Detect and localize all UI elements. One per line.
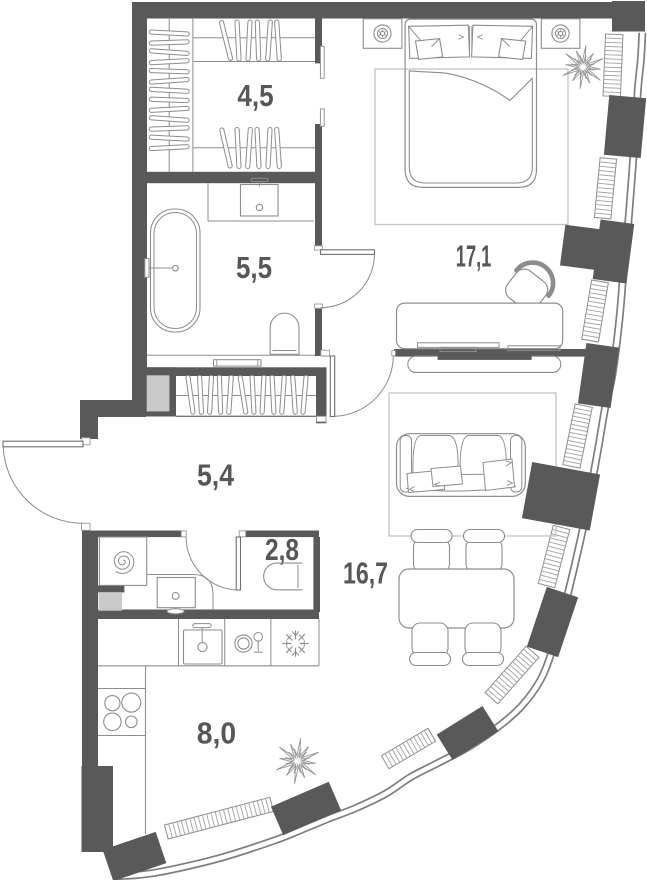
svg-text:4,5: 4,5	[237, 79, 273, 113]
svg-text:16,7: 16,7	[343, 557, 388, 591]
svg-text:17,1: 17,1	[456, 239, 492, 273]
svg-text:5,5: 5,5	[236, 251, 272, 285]
svg-text:5,4: 5,4	[197, 458, 234, 492]
svg-text:8,0: 8,0	[197, 716, 236, 750]
svg-text:2,8: 2,8	[265, 533, 299, 567]
